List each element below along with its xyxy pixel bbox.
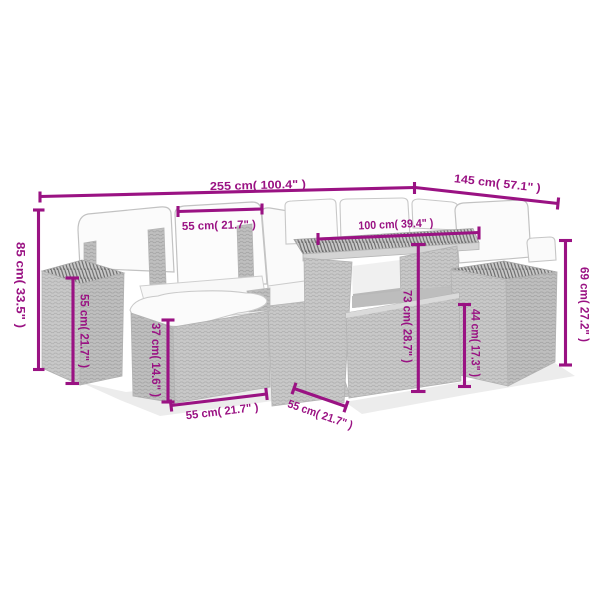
- svg-text:69 cm( 27.2" ): 69 cm( 27.2" ): [578, 267, 590, 342]
- svg-text:255 cm( 100.4" ): 255 cm( 100.4" ): [210, 179, 306, 193]
- svg-text:55 cm( 21.7" ): 55 cm( 21.7" ): [78, 294, 90, 368]
- svg-text:55 cm( 21.7" ): 55 cm( 21.7" ): [182, 219, 256, 233]
- svg-text:73 cm( 28.7" ): 73 cm( 28.7" ): [401, 290, 413, 363]
- svg-text:44 cm( 17.3" ): 44 cm( 17.3" ): [469, 309, 481, 377]
- svg-text:37 cm( 14.6" ): 37 cm( 14.6" ): [149, 323, 161, 397]
- svg-text:85 cm( 33.5" ): 85 cm( 33.5" ): [14, 242, 26, 328]
